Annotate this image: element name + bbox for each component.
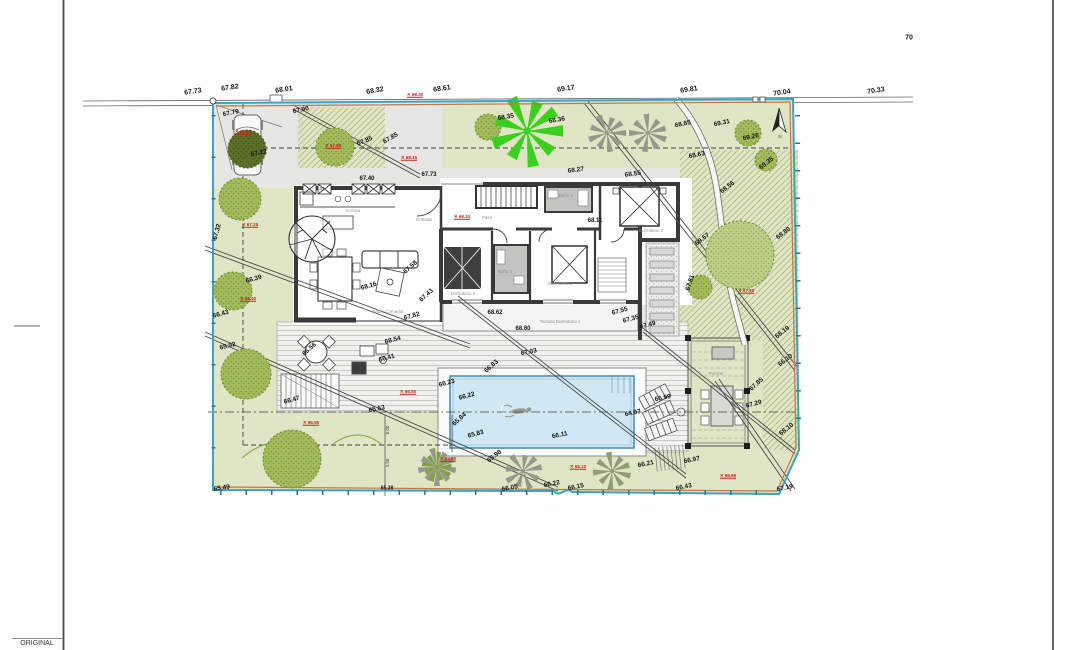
site-plan-drawing	[0, 0, 1070, 650]
outdoor-grill	[712, 347, 734, 359]
pergola-table	[711, 386, 733, 426]
bed-dormitorio-2	[444, 247, 481, 289]
bathroom-2	[494, 245, 528, 293]
bed-dormitorio-1	[613, 187, 666, 226]
bathroom-1	[545, 187, 592, 212]
bed-dormitorio-3	[552, 246, 587, 283]
gate-symbol	[210, 98, 216, 104]
stairwell	[476, 186, 537, 208]
deciduous-tree-art	[289, 216, 335, 262]
original-stamp: ORIGINAL	[12, 638, 62, 647]
site-plan-sheet: 67.7367.8268.0168.3268.6169.1769.8170.04…	[0, 0, 1070, 650]
house	[293, 178, 692, 340]
